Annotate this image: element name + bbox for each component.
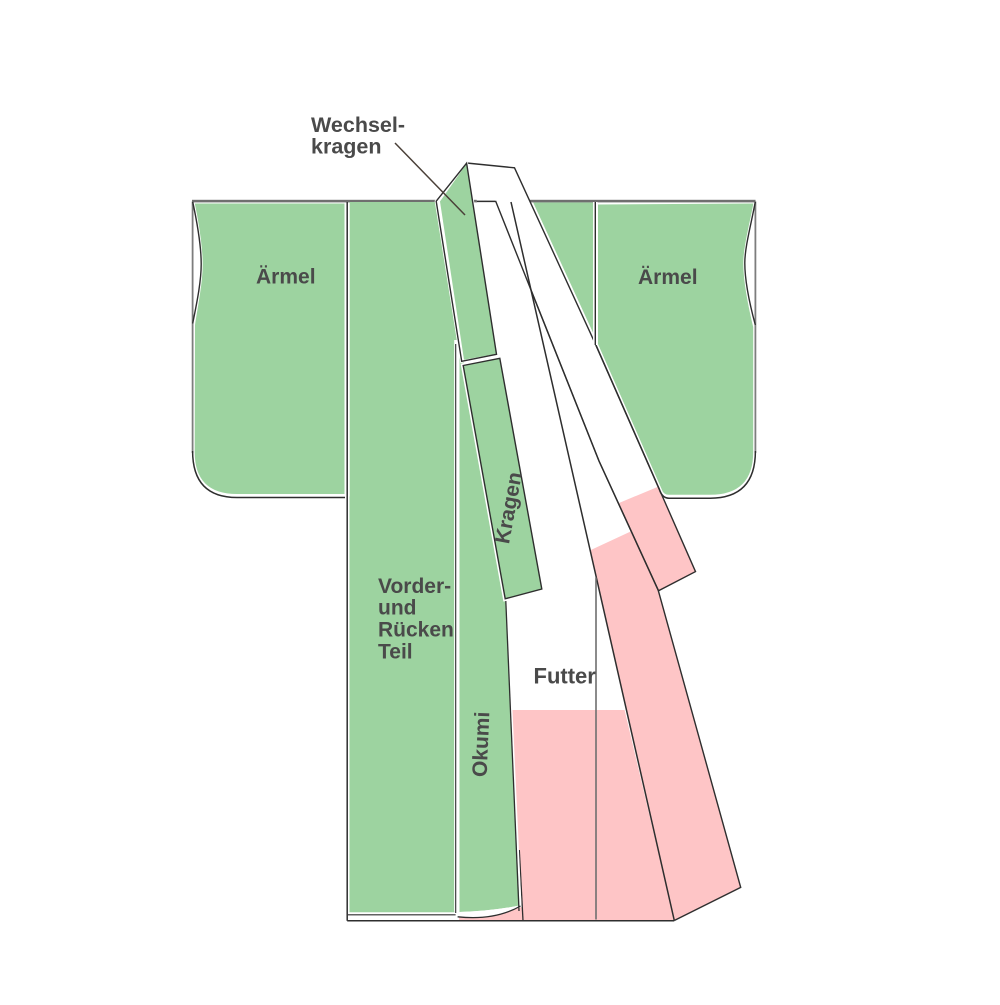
svg-text:Ärmel: Ärmel: [256, 266, 316, 289]
svg-text:Vorder-: Vorder-: [378, 575, 451, 598]
svg-text:Ärmel: Ärmel: [638, 266, 698, 289]
svg-text:Rücken: Rücken: [378, 619, 454, 642]
svg-text:und: und: [378, 597, 416, 620]
svg-text:Teil: Teil: [378, 641, 413, 664]
svg-text:Okumi: Okumi: [469, 711, 495, 777]
svg-text:kragen: kragen: [311, 135, 382, 159]
svg-text:Futter: Futter: [534, 664, 597, 689]
svg-text:Wechsel-: Wechsel-: [311, 113, 405, 137]
